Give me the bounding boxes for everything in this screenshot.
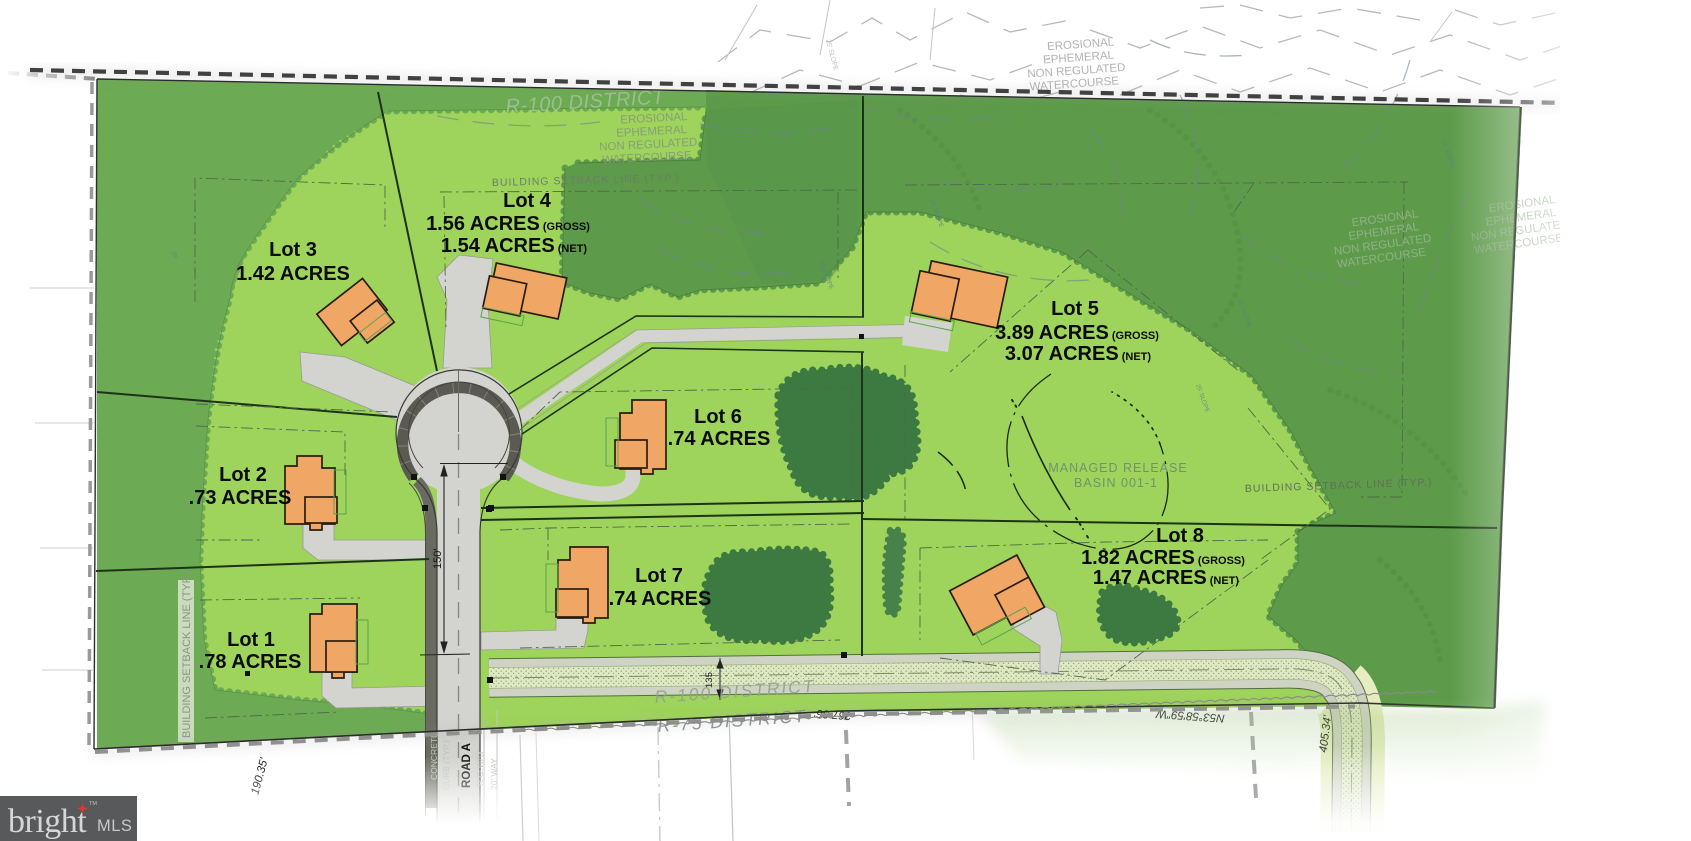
svg-text:bright: bright [8, 803, 87, 840]
svg-text:Lot 1: Lot 1 [227, 629, 275, 651]
svg-text:MANAGED RELEASE: MANAGED RELEASE [1048, 461, 1187, 475]
svg-text:Lot 6: Lot 6 [694, 406, 742, 428]
svg-text:1.42 ACRES: 1.42 ACRES [236, 263, 350, 285]
svg-text:.73 ACRES: .73 ACRES [189, 487, 292, 509]
svg-text:.78 ACRES: .78 ACRES [199, 651, 302, 673]
svg-text:Lot 2: Lot 2 [219, 464, 267, 486]
svg-text:MLS: MLS [97, 817, 132, 835]
svg-text:Lot 4: Lot 4 [503, 190, 552, 212]
svg-text:Lot 5: Lot 5 [1051, 298, 1099, 320]
svg-text:135: 135 [704, 672, 715, 688]
svg-text:Lot 3: Lot 3 [269, 239, 317, 261]
svg-text:.74 ACRES: .74 ACRES [609, 588, 712, 610]
svg-text:BASIN 001-1: BASIN 001-1 [1074, 476, 1158, 490]
svg-text:TM: TM [89, 801, 97, 807]
svg-text:Lot 8: Lot 8 [1156, 525, 1204, 547]
svg-text:.74 ACRES: .74 ACRES [668, 428, 771, 450]
svg-text:150': 150' [432, 549, 444, 569]
svg-text:BUILDING SETBACK LINE (TYP.: BUILDING SETBACK LINE (TYP.) [181, 571, 193, 738]
svg-text:Lot 7: Lot 7 [635, 565, 683, 587]
